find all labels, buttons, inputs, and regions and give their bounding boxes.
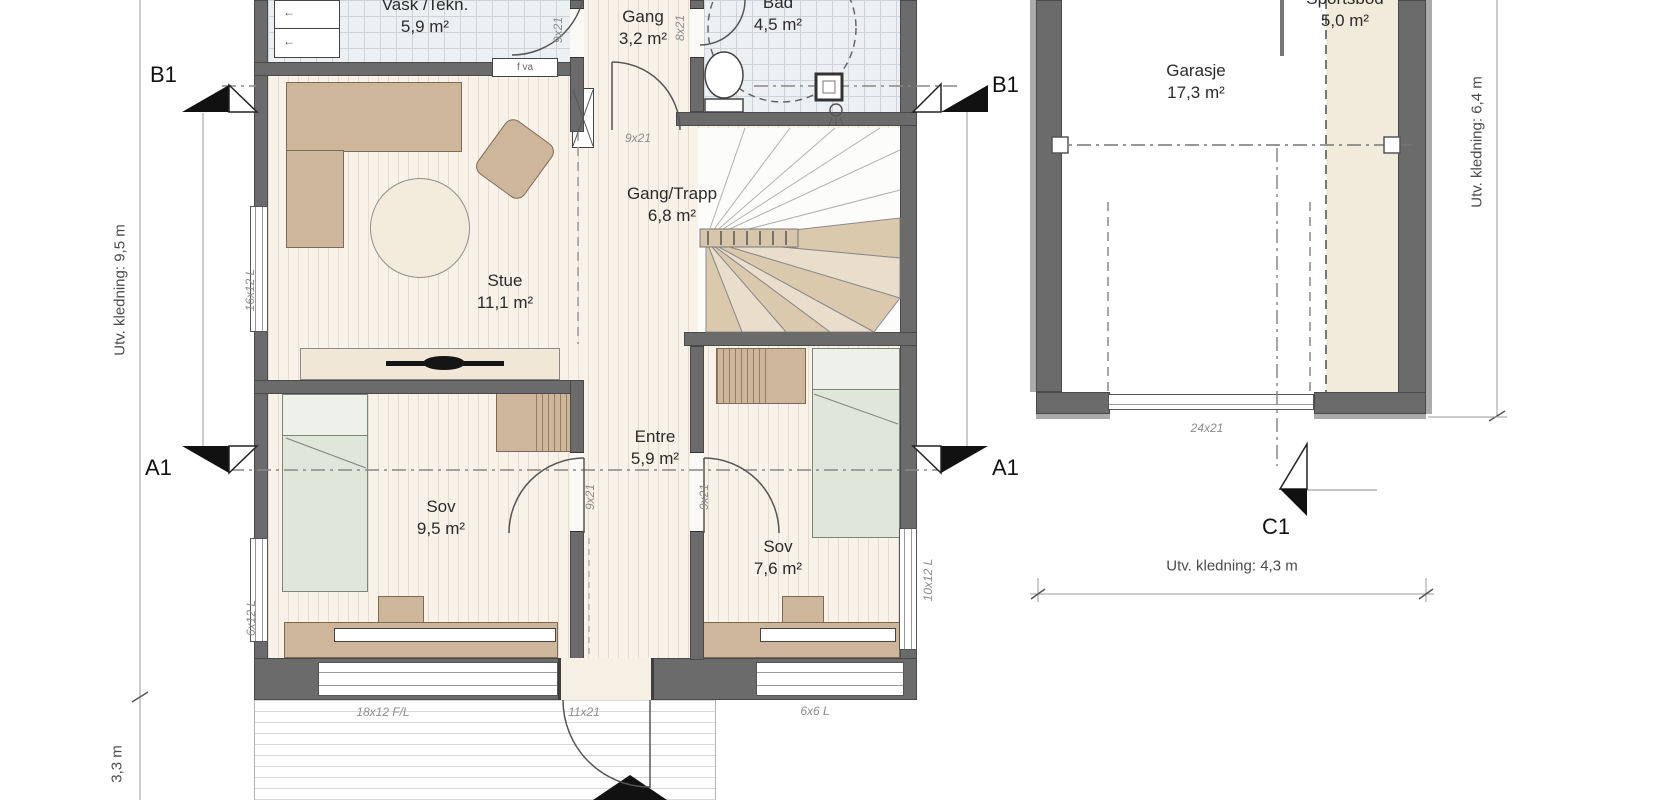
section-marker-c1: C1 bbox=[1262, 514, 1290, 540]
room-label-vask: Vask /Tekn. 5,9 m² bbox=[382, 0, 469, 38]
room-name: Sov bbox=[754, 536, 802, 558]
window-sill-sov2 bbox=[760, 628, 896, 642]
room-name: Sov bbox=[417, 496, 465, 518]
room-label-stue: Stue 11,1 m² bbox=[477, 270, 533, 314]
room-area: 9,5 m² bbox=[417, 518, 465, 540]
bed-pillow bbox=[813, 349, 899, 390]
bed-pillow bbox=[283, 395, 367, 436]
round-rug bbox=[370, 178, 470, 278]
room-name: Sportsbod bbox=[1306, 0, 1384, 10]
tag-window-south-small: 6x6 L bbox=[800, 704, 829, 718]
wall-stue-south bbox=[254, 380, 584, 394]
tag-window-sov1-left: 6x12 L bbox=[244, 600, 258, 636]
tag-garage-door: 24x21 bbox=[1191, 421, 1224, 435]
garage-wall-south-left bbox=[1036, 392, 1110, 414]
window-sill-sov1 bbox=[334, 628, 556, 642]
marker-arrow-c1 bbox=[1280, 489, 1307, 516]
window-sov2-east bbox=[899, 528, 917, 650]
room-area: 6,8 m² bbox=[627, 205, 717, 227]
tag-window-sov2-right: 10x12 L bbox=[921, 559, 935, 602]
door-opening-vask bbox=[570, 8, 584, 58]
tag-window-south-large: 18x12 F/L bbox=[356, 705, 409, 719]
room-area: 5,9 m² bbox=[631, 448, 679, 470]
appliance-divider bbox=[275, 28, 339, 29]
garage-south-cladding-right bbox=[1314, 414, 1426, 419]
marker-arrow-outline bbox=[913, 84, 941, 112]
tag-window-stue-left: 16x12 L bbox=[243, 269, 257, 312]
tv-console bbox=[300, 348, 560, 380]
tag-door-vask: 9x21 bbox=[551, 17, 565, 43]
window-south-small bbox=[756, 662, 904, 696]
room-label-sov2: Sov 7,6 m² bbox=[754, 536, 802, 580]
sportsbod-floor bbox=[1326, 0, 1398, 392]
dim-tick bbox=[1031, 589, 1045, 599]
bed-sov1 bbox=[282, 394, 368, 592]
door-opening-bad bbox=[690, 8, 704, 58]
appliance-arrow-icon: ← bbox=[283, 5, 295, 19]
marker-arrow-b1-right bbox=[941, 85, 988, 112]
tag-entrance-door: 11x21 bbox=[568, 705, 600, 719]
wall-vent-label: f va bbox=[493, 59, 557, 76]
room-area: 17,3 m² bbox=[1166, 82, 1226, 104]
room-area: 5,0 m² bbox=[1306, 10, 1384, 32]
appliance-arrow-icon: ← bbox=[283, 34, 295, 48]
wall-vent-box: f va bbox=[492, 58, 558, 77]
room-area: 4,5 m² bbox=[754, 14, 802, 36]
door-opening-sov1 bbox=[570, 452, 584, 532]
room-label-gang: Gang 3,2 m² bbox=[619, 6, 667, 50]
room-name: Vask /Tekn. bbox=[382, 0, 469, 16]
marker-arrow-outline bbox=[229, 446, 257, 473]
garage-wall-west bbox=[1036, 0, 1062, 392]
sofa-top-section bbox=[286, 82, 462, 152]
deck-terrace bbox=[254, 700, 716, 800]
floor-plan-canvas: ← ← f va bbox=[0, 0, 1670, 800]
room-name: Entre bbox=[631, 426, 679, 448]
marker-arrow-a1-left bbox=[182, 446, 229, 473]
room-name: Bad bbox=[754, 0, 802, 14]
tag-door-bad: 8x21 bbox=[673, 15, 687, 41]
dim-tick bbox=[1489, 411, 1505, 421]
marker-arrow-outline bbox=[229, 85, 257, 112]
room-area: 5,9 m² bbox=[382, 16, 469, 38]
wardrobe-sov2 bbox=[716, 348, 806, 404]
room-label-gang-trapp: Gang/Trapp 6,8 m² bbox=[627, 183, 717, 227]
wardrobe-door-hatch bbox=[717, 349, 770, 403]
marker-arrow-a1-right bbox=[941, 446, 988, 473]
room-name: Garasje bbox=[1166, 60, 1226, 82]
section-marker-b1-right: B1 bbox=[992, 72, 1019, 98]
bed-sov2 bbox=[812, 348, 900, 538]
stair-floor bbox=[698, 128, 900, 332]
wall-stair-south bbox=[684, 332, 917, 346]
section-marker-a1-right: A1 bbox=[992, 455, 1019, 481]
wall-bad-south bbox=[676, 112, 917, 126]
entrance-door-opening bbox=[558, 658, 654, 700]
marker-arrow-outline bbox=[1280, 444, 1307, 489]
garage-wall-south-right bbox=[1314, 392, 1426, 414]
marker-arrow-outline bbox=[913, 446, 941, 473]
room-name: Gang/Trapp bbox=[627, 183, 717, 205]
laundry-appliances: ← ← bbox=[274, 0, 340, 58]
dim-label-left-main: Utv. kledning: 9,5 m bbox=[112, 224, 129, 355]
tag-door-gang-trapp: 9x21 bbox=[625, 131, 651, 145]
garage-south-cladding-left bbox=[1036, 414, 1110, 419]
dim-tick bbox=[1419, 589, 1433, 599]
tag-door-sov2: 9x21 bbox=[697, 484, 711, 510]
sportsbod-wall-stub bbox=[1280, 0, 1284, 56]
room-label-entre: Entre 5,9 m² bbox=[631, 426, 679, 470]
sofa-left-section bbox=[286, 150, 344, 248]
room-name: Stue bbox=[477, 270, 533, 292]
marker-arrow-b1-left bbox=[182, 85, 229, 112]
window-south-large bbox=[318, 662, 558, 696]
room-label-sov1: Sov 9,5 m² bbox=[417, 496, 465, 540]
dim-label-garage-right: Utv. kledning: 6,4 m bbox=[1469, 76, 1486, 207]
section-marker-b1-left: B1 bbox=[150, 62, 177, 88]
garage-door-opening bbox=[1108, 394, 1314, 410]
dim-tick bbox=[132, 692, 148, 702]
dim-label-left-deck: 3,3 m bbox=[109, 745, 126, 783]
room-area: 11,1 m² bbox=[477, 292, 533, 314]
dim-label-garage-bottom: Utv. kledning: 4,3 m bbox=[1166, 558, 1297, 575]
room-label-sportsbod: Sportsbod 5,0 m² bbox=[1306, 0, 1384, 32]
section-marker-a1-left: A1 bbox=[145, 455, 172, 481]
garage-wall-east bbox=[1398, 0, 1426, 414]
garage-wall-east-cladding bbox=[1426, 0, 1432, 414]
tag-door-sov1: 9x21 bbox=[583, 484, 597, 510]
room-area: 3,2 m² bbox=[619, 28, 667, 50]
room-label-bad: Bad 4,5 m² bbox=[754, 0, 802, 36]
room-area: 7,6 m² bbox=[754, 558, 802, 580]
room-name: Gang bbox=[619, 6, 667, 28]
room-label-garasje: Garasje 17,3 m² bbox=[1166, 60, 1226, 104]
